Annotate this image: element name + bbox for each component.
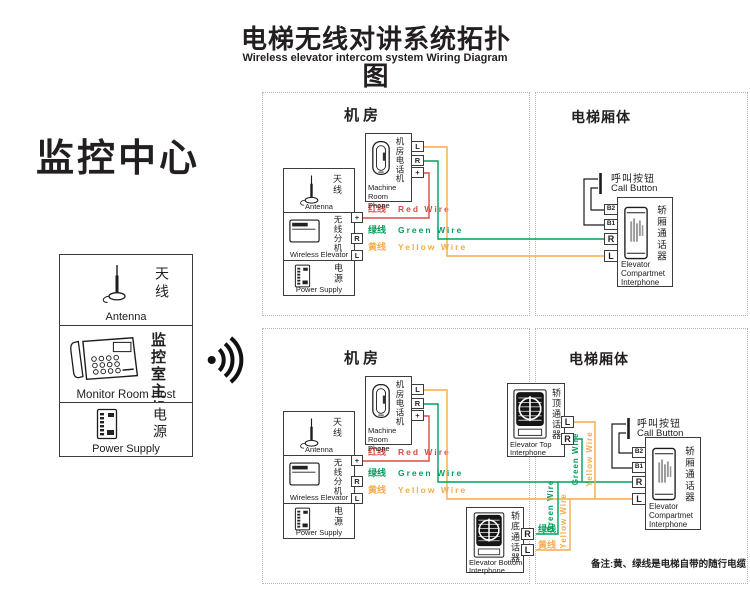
- machine-room-label-top: 机房: [344, 104, 382, 125]
- compartment-label-en3: Interphone: [649, 520, 687, 529]
- terminal-r: R: [521, 528, 534, 540]
- wireless-extension-icon: [289, 462, 320, 486]
- machine-phone-label-en2: Room Phone: [368, 435, 411, 453]
- wireless-extension-cell-top: 无线分机 Wireless Elevator: [283, 212, 355, 261]
- wireless-extension-label-en: Wireless Elevator: [284, 493, 354, 502]
- machine-phone-label-zh: 机房电话机: [394, 380, 406, 427]
- terminal-r: R: [561, 433, 574, 445]
- terminal-plus: +: [351, 455, 363, 466]
- terminal-r: R: [411, 155, 424, 166]
- monitor-power-label-zh: 电源: [152, 407, 168, 441]
- terminal-r: R: [604, 233, 618, 245]
- yellow-wire-vertical-label-up: Yellow Wire: [586, 431, 594, 486]
- bottom-interphone-label-zh: 轿底通话器: [509, 511, 521, 564]
- terminal-plus: +: [411, 167, 424, 178]
- wireless-power-label-zh: 电源: [332, 506, 343, 527]
- terminal-r: R: [351, 233, 363, 244]
- machine-phone-label-en2: Room Phone: [368, 192, 411, 210]
- antenna-label-zh: 天线: [331, 174, 342, 196]
- elevator-bottom-interphone-icon: [471, 512, 507, 558]
- note-text: 备注:黄、绿线是电梯自带的随行电缆: [591, 556, 746, 570]
- terminal-l: L: [411, 141, 424, 152]
- terminal-l: L: [521, 544, 534, 556]
- compartment-label-en2: Compartmet: [649, 511, 693, 520]
- wireless-power-cell-bottom: 电源 Power Supply: [283, 503, 355, 539]
- diagram-stage: 电梯无线对讲系统拓扑图 Wireless elevator intercom s…: [0, 0, 750, 589]
- compartment-interphone-box-top: 轿厢通话器 Elevator Compartmet Interphone: [617, 197, 673, 287]
- compartment-label-zh: 轿厢通话器: [682, 446, 694, 504]
- elevator-top-interphone-icon: [512, 389, 548, 439]
- wireless-power-label-zh: 电源: [332, 263, 343, 284]
- monitor-host-cell: 监控室主机 Monitor Room Host: [59, 325, 193, 403]
- elevator-top-interphone-box: 轿顶通话器 Elevator Top Interphone: [507, 383, 565, 457]
- top-interphone-label-en2: Interphone: [510, 448, 546, 457]
- terminal-plus: +: [351, 212, 363, 223]
- bottom-interphone-label-en2: Interphone: [469, 566, 505, 575]
- wireless-antenna-cell-top: 天线 Antenna: [283, 168, 355, 213]
- desk-phone-icon: [66, 335, 146, 383]
- compartment-label-zh: 轿厢通话器: [654, 205, 666, 263]
- handset-icon: [371, 382, 391, 420]
- compartment-label-en1: Elevator: [649, 502, 678, 511]
- elevator-car-label-top: 电梯厢体: [571, 107, 631, 127]
- machine-phone-label-en1: Machine: [368, 183, 396, 192]
- compartment-interphone-icon: [622, 205, 650, 261]
- antenna-label-en: Antenna: [284, 202, 354, 211]
- machine-room-label-bottom: 机房: [344, 347, 382, 368]
- yellow-wire-vertical-label-down: Yellow Wire: [560, 493, 568, 548]
- compartment-label-en1: Elevator: [621, 260, 650, 269]
- call-button-label-en: Call Button: [611, 183, 657, 194]
- monitor-center-title: 监控中心: [36, 127, 200, 182]
- wireless-extension-cell-bottom: 无线分机 Wireless Elevator: [283, 455, 355, 504]
- monitor-power-cell: 电源 Power Supply: [59, 402, 193, 457]
- wireless-extension-label-zh: 无线分机: [332, 215, 343, 253]
- wireless-antenna-cell-bottom: 天线 Antenna: [283, 411, 355, 456]
- monitor-antenna-cell: 天线 Antenna: [59, 254, 193, 326]
- terminal-r: R: [632, 476, 646, 488]
- compartment-label-en3: Interphone: [621, 278, 659, 287]
- power-supply-icon: [96, 408, 118, 440]
- terminal-l: L: [561, 416, 574, 428]
- terminal-l: L: [632, 493, 646, 505]
- antenna-label-zh: 天线: [331, 417, 342, 439]
- antenna-icon: [100, 261, 134, 307]
- yellow-wire-label-top: 黄线Yellow Wire: [368, 243, 467, 252]
- wireless-extension-label-en: Wireless Elevator: [284, 250, 354, 259]
- handset-icon: [371, 139, 391, 177]
- monitor-antenna-label-zh: 天线: [154, 266, 170, 302]
- green-wire-label-bottom: 绿线Green Wire: [368, 469, 463, 478]
- terminal-plus: +: [411, 410, 424, 421]
- machine-phone-label-zh: 机房电话机: [394, 137, 406, 184]
- compartment-label-en2: Compartmet: [621, 269, 665, 278]
- compartment-interphone-icon: [650, 446, 678, 502]
- terminal-b1: B1: [632, 462, 646, 473]
- terminal-l: L: [351, 250, 363, 261]
- machine-phone-label-en1: Machine: [368, 426, 396, 435]
- elevator-bottom-interphone-box: 轿底通话器 Elevator Bottom Interphone: [466, 507, 524, 573]
- machine-room-phone-box-bottom: 机房电话机 Machine Room Phone: [365, 376, 412, 445]
- wireless-extension-icon: [289, 219, 320, 243]
- compartment-interphone-box-bottom: 轿厢通话器 Elevator Compartmet Interphone: [645, 437, 701, 530]
- elevator-car-label-bottom: 电梯厢体: [569, 349, 629, 369]
- terminal-b1: B1: [604, 219, 618, 230]
- wireless-power-label-en: Power Supply: [284, 528, 354, 537]
- monitor-power-label-en: Power Supply: [60, 445, 192, 454]
- wireless-power-cell-top: 电源 Power Supply: [283, 260, 355, 296]
- wireless-power-label-en: Power Supply: [284, 285, 354, 294]
- yellow-wire-label-bottom: 黄线Yellow Wire: [368, 486, 467, 495]
- terminal-l: L: [604, 250, 618, 262]
- terminal-r: R: [351, 476, 363, 487]
- terminal-b2: B2: [604, 204, 618, 215]
- wireless-extension-label-zh: 无线分机: [332, 458, 343, 496]
- monitor-host-label-zh: 监控室主机: [148, 332, 166, 383]
- wireless-signal-icon: [205, 334, 249, 386]
- antenna-label-en: Antenna: [284, 445, 354, 454]
- terminal-r: R: [411, 398, 424, 409]
- green-wire-label-top: 绿线Green Wire: [368, 226, 463, 235]
- terminal-l: L: [351, 493, 363, 504]
- monitor-antenna-label-en: Antenna: [60, 313, 192, 322]
- terminal-l: L: [411, 384, 424, 395]
- page-subtitle: Wireless elevator intercom system Wiring…: [225, 52, 525, 64]
- yellow-wire-short-label: 黄线: [538, 541, 556, 550]
- monitor-host-label-en: Monitor Room Host: [60, 391, 192, 400]
- green-wire-short-label: 绿线: [538, 525, 556, 534]
- terminal-b2: B2: [632, 447, 646, 458]
- machine-room-phone-box-top: 机房电话机 Machine Room Phone: [365, 133, 412, 202]
